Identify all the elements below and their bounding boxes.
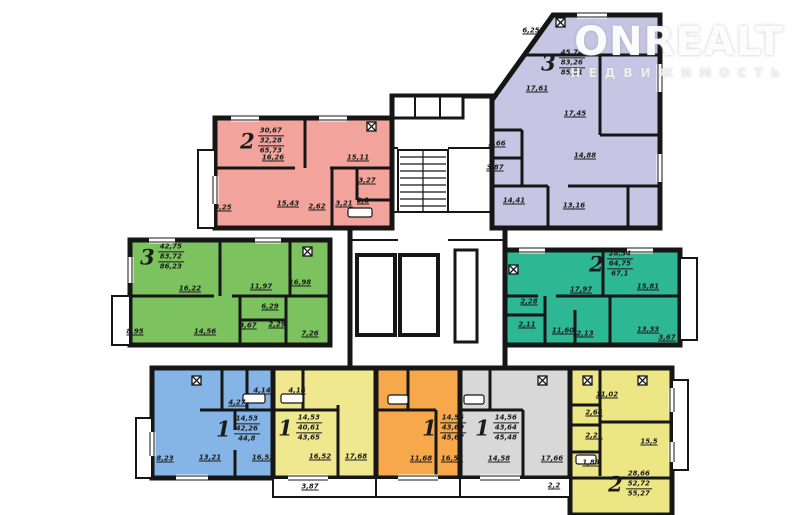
room-area-label: 7,26	[301, 331, 318, 338]
vent-shaft-icon	[192, 376, 201, 385]
area-fraction: 42,75 83,72 86,23	[158, 242, 184, 271]
room-area-label: 16,22	[179, 286, 201, 293]
room-area-label: 15,11	[347, 155, 369, 162]
window-icon	[657, 64, 664, 92]
area-value: 42,26	[234, 423, 260, 434]
room-area-label: 2,64	[585, 410, 602, 417]
entrance-vestibule	[393, 96, 463, 118]
room-area-label: 14,56	[194, 329, 216, 336]
rooms-count: 3	[541, 53, 556, 74]
window-icon	[255, 237, 281, 244]
balcony-area-label: 3,87	[301, 484, 318, 491]
bathtub-icon	[281, 394, 303, 403]
area-value: 14,53	[296, 413, 322, 422]
window-icon	[127, 257, 134, 283]
area-value: 83,26	[559, 57, 585, 68]
area-value: 43,64	[493, 422, 519, 433]
window-icon	[669, 442, 676, 462]
room-area-label: 13,21	[199, 455, 221, 462]
room-area-label: 2,28	[520, 299, 537, 306]
room-area-label: 11,97	[250, 284, 272, 291]
rooms-count: 2	[240, 131, 255, 152]
area-fraction: 45,74 83,26 85,81	[559, 48, 585, 77]
area-value: 28,34	[607, 249, 633, 258]
balcony-outline	[680, 258, 697, 340]
area-value: 42,75	[158, 242, 184, 251]
rooms-count: 1	[422, 418, 437, 439]
area-value: 45,74	[559, 48, 585, 57]
area-value: 55,27	[626, 490, 652, 499]
window-icon	[176, 475, 208, 482]
room-area-label: 11,68	[410, 456, 432, 463]
room-area-label: 16,26	[262, 155, 284, 162]
area-value: 85,81	[559, 69, 585, 78]
room-area-label: 3,67	[658, 335, 675, 342]
area-fraction: 14,56 43,69 45,67	[440, 413, 466, 442]
service-shaft	[455, 250, 477, 342]
area-fraction: 30,67 32,28 65,73	[258, 126, 284, 155]
room-area-label: 15,43	[277, 201, 299, 208]
room-area-label: 15,5	[640, 439, 657, 446]
room-area-label: 14,58	[488, 456, 510, 463]
room-area-label: 17,68	[345, 454, 367, 461]
area-fraction: 28,34 64,75 67,1	[607, 249, 633, 278]
window-icon	[231, 115, 259, 122]
floor-plan: 2 30,67 32,28 65,73 3 45,74 83,26 85,81 …	[0, 0, 800, 515]
room-area-label: 16,56	[441, 456, 463, 463]
vent-shaft-icon	[583, 376, 592, 385]
room-area-label: 13,33	[637, 327, 659, 334]
rooms-count: 3	[140, 247, 155, 268]
area-value: 30,67	[258, 126, 284, 135]
area-fraction: 14,56 43,64 45,48	[493, 413, 519, 442]
room-area-label: 8,25	[214, 205, 231, 212]
room-area-label: 16,98	[289, 280, 311, 287]
area-value: 14,56	[493, 413, 519, 422]
room-area-label: 3,87	[486, 165, 503, 172]
area-value: 45,48	[493, 434, 519, 443]
room-area-label: 4,14	[253, 388, 270, 395]
window-icon	[480, 475, 520, 482]
room-area-label: 16,52	[309, 454, 331, 461]
room-area-label: 2,2	[548, 483, 560, 490]
vent-shaft-icon	[556, 18, 565, 27]
room-area-label: 4,27	[228, 400, 245, 407]
area-value: 43,65	[296, 434, 322, 443]
room-area-label: 2,62	[308, 204, 325, 211]
room-area-label: 2,21	[585, 433, 602, 440]
room-area-label: 8,23	[156, 456, 173, 463]
room-area-label: 2,1	[357, 198, 369, 205]
apartment-label-yellow: 1 14,53 40,61 43,65	[278, 413, 322, 442]
area-value: 32,28	[258, 135, 284, 146]
room-area-label: 13,16	[563, 203, 585, 210]
elevator-shaft	[400, 255, 438, 335]
area-value: 86,23	[158, 263, 184, 272]
apartment-label-teal: 2 28,34 64,75 67,1	[589, 249, 633, 278]
room-area-label: 6,25	[522, 28, 539, 35]
room-area-label: 2,29	[268, 322, 285, 329]
area-value: 64,75	[607, 258, 633, 269]
vent-shaft-icon	[303, 247, 312, 256]
room-area-label: 2,66	[488, 141, 505, 148]
apartment-label-yellow-right: 2 28,66 52,72 55,27	[608, 469, 652, 498]
bathtub-icon	[243, 394, 265, 403]
room-area-label: 14,88	[574, 153, 596, 160]
room-area-label: 11,02	[596, 392, 618, 399]
bathtub-icon	[348, 208, 372, 217]
room-area-label: 3,67	[239, 323, 256, 330]
area-value: 14,53	[234, 414, 260, 423]
window-icon	[657, 154, 664, 182]
area-value: 52,72	[626, 478, 652, 489]
room-area-label: 8,95	[126, 329, 143, 336]
area-fraction: 14,53 40,61 43,65	[296, 413, 322, 442]
area-value: 43,69	[440, 422, 466, 433]
bathtub-icon	[464, 395, 484, 404]
rooms-count: 1	[475, 418, 490, 439]
rooms-count: 1	[278, 418, 293, 439]
window-icon	[519, 247, 545, 254]
balcony-outline	[112, 296, 130, 345]
area-fraction: 14,53 42,26 44,8	[234, 414, 260, 443]
room-area-label: 2,13	[576, 331, 593, 338]
room-area-label: 14,41	[503, 198, 525, 205]
stairs-icon	[398, 150, 448, 212]
apartment-label-orange: 1 14,56 43,69 45,67	[422, 413, 466, 442]
rooms-count: 2	[589, 254, 604, 275]
window-icon	[577, 12, 607, 19]
area-fraction: 28,66 52,72 55,27	[626, 469, 652, 498]
area-value: 28,66	[626, 469, 652, 478]
window-icon	[149, 432, 156, 456]
room-area-label: 2,11	[518, 322, 535, 329]
room-area-label: 1,89	[582, 460, 599, 467]
room-area-label: 6,29	[261, 304, 278, 311]
area-value: 44,8	[234, 435, 260, 444]
room-area-label: 3,21	[335, 201, 352, 208]
area-value: 40,61	[296, 422, 322, 433]
apartment-label-green: 3 42,75 83,72 86,23	[140, 242, 184, 271]
area-value: 14,56	[440, 413, 466, 422]
room-area-label: 17,61	[526, 86, 548, 93]
window-icon	[669, 388, 676, 412]
apartment-label-gray: 1 14,56 43,64 45,48	[475, 413, 519, 442]
vent-shaft-icon	[509, 265, 518, 274]
room-area-label: 17,45	[564, 111, 586, 118]
area-value: 83,72	[158, 251, 184, 262]
apartment-label-pink: 2 30,67 32,28 65,73	[240, 126, 284, 155]
room-area-label: 3,27	[358, 178, 375, 185]
floor-plan-drawing	[0, 0, 800, 515]
area-value: 67,1	[607, 270, 633, 279]
bathtub-icon	[388, 395, 408, 404]
room-area-label: 16,52	[252, 455, 274, 462]
window-icon	[212, 176, 219, 204]
room-area-label: 11,60	[552, 328, 574, 335]
vent-shaft-icon	[638, 376, 647, 385]
area-value: 45,67	[440, 434, 466, 443]
window-icon	[398, 475, 438, 482]
room-area-label: 4,16	[288, 388, 305, 395]
elevator-shaft	[357, 255, 395, 335]
room-area-label: 17,97	[570, 287, 592, 294]
vent-shaft-icon	[367, 122, 376, 131]
vent-shaft-icon	[538, 376, 547, 385]
room-area-label: 17,66	[541, 456, 563, 463]
room-area-label: 15,81	[637, 284, 659, 291]
apartment-label-blue: 1 14,53 42,26 44,8	[216, 414, 260, 443]
rooms-count: 2	[608, 474, 623, 495]
apartment-label-purple: 3 45,74 83,26 85,81	[541, 48, 585, 77]
rooms-count: 1	[216, 419, 231, 440]
window-icon	[319, 115, 347, 122]
window-icon	[288, 475, 328, 482]
